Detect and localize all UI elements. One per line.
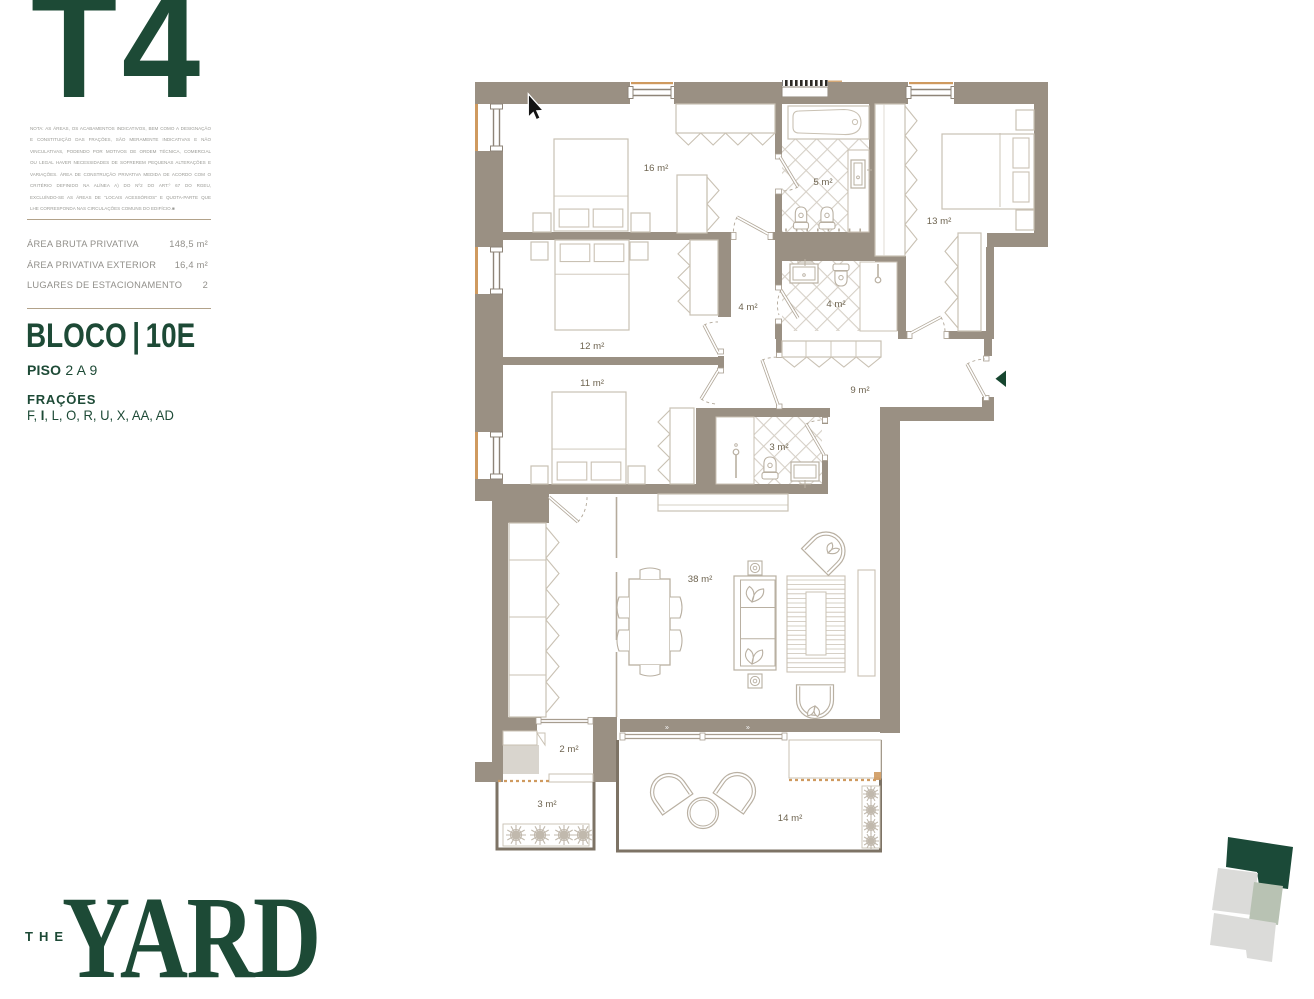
- svg-text:14 m²: 14 m²: [778, 813, 803, 824]
- svg-text:3 m²: 3 m²: [537, 799, 557, 810]
- svg-text:4 m²: 4 m²: [738, 302, 758, 313]
- svg-text:»: »: [746, 725, 750, 732]
- svg-text:12 m²: 12 m²: [580, 341, 605, 352]
- svg-text:»: »: [665, 725, 669, 732]
- svg-text:13 m²: 13 m²: [927, 216, 952, 227]
- svg-text:5 m²: 5 m²: [813, 177, 833, 188]
- svg-text:38 m²: 38 m²: [688, 574, 713, 585]
- svg-text:11 m²: 11 m²: [580, 378, 605, 389]
- svg-text:3 m²: 3 m²: [769, 442, 789, 453]
- svg-text:4 m²: 4 m²: [826, 299, 846, 310]
- svg-text:16 m²: 16 m²: [644, 163, 669, 174]
- svg-text:9 m²: 9 m²: [850, 385, 870, 396]
- svg-text:2 m²: 2 m²: [559, 744, 579, 755]
